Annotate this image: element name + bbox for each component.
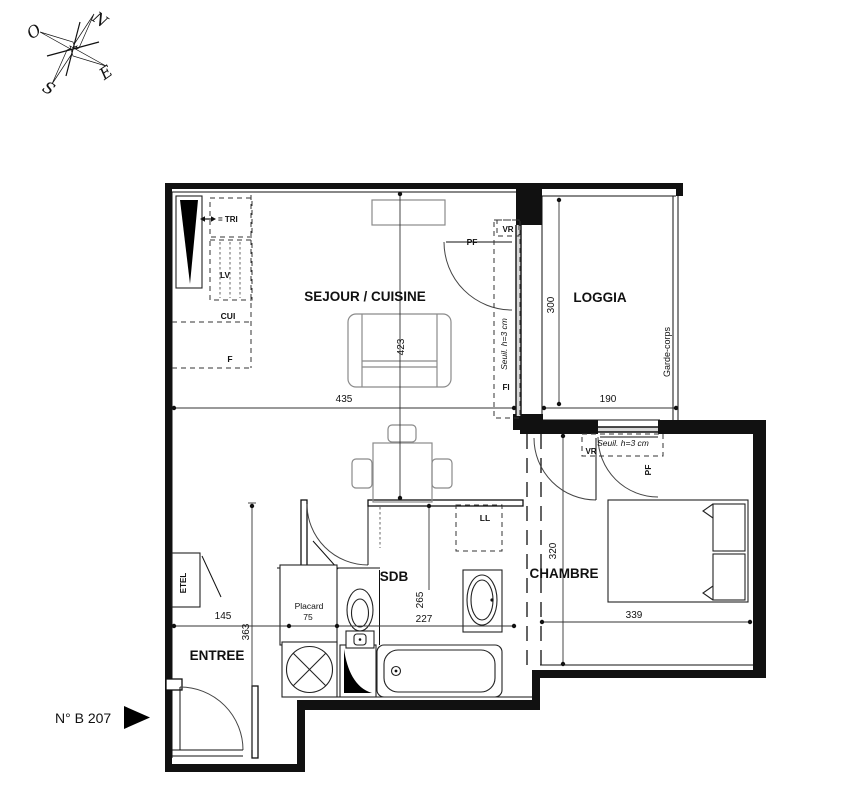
wall-entry-bottom <box>165 764 305 772</box>
wall-sdb-bottom <box>297 700 540 710</box>
dim-dot <box>398 496 402 500</box>
compass-label-west: O <box>23 20 45 43</box>
furniture <box>348 200 748 602</box>
wall-entry-alcove <box>252 686 258 758</box>
bathtub <box>377 645 502 697</box>
dim-dot <box>557 402 561 406</box>
dim-dot <box>748 620 752 624</box>
floor-plan-drawing: N O E S <box>0 0 841 800</box>
label-pf-chambre: PF <box>643 465 653 476</box>
door-arc-sejour <box>444 242 512 310</box>
dim-145: 145 <box>215 611 232 622</box>
label-fridge: F <box>227 354 232 364</box>
label-garde-corps: Garde-corps <box>662 326 672 377</box>
chair <box>352 459 372 488</box>
dining-set <box>352 425 452 502</box>
wall-loggia-pillar <box>516 183 542 225</box>
label-ll: LL <box>480 513 490 523</box>
toilet <box>346 589 374 648</box>
dishwasher-zone <box>210 240 252 300</box>
unit-number: N° B 207 <box>55 706 150 729</box>
dim-300: 300 <box>546 296 557 313</box>
dim-dot <box>540 620 544 624</box>
dim-dot <box>398 192 402 196</box>
floor-plan-page: N O E S <box>0 0 841 800</box>
dim-339: 339 <box>626 610 643 621</box>
label-lv: LV <box>220 271 230 280</box>
kitchen-zone <box>172 195 252 368</box>
dim-435: 435 <box>336 394 353 405</box>
dining-table <box>373 443 432 502</box>
label-tri: = TRI <box>218 215 238 224</box>
washbasin-counter <box>463 570 502 632</box>
pillow <box>713 554 745 600</box>
compass-needle-e2 <box>70 46 106 66</box>
dim-dot <box>674 406 678 410</box>
toilet-flush-dot <box>359 638 362 641</box>
wall-window-stub <box>513 414 543 430</box>
dim-dot <box>250 504 254 508</box>
wall-entree-sdb <box>301 500 307 570</box>
etel-door-leaf <box>202 556 221 597</box>
dim-dot <box>512 624 516 628</box>
loggia-railing <box>673 196 678 420</box>
room-label-chambre: CHAMBRE <box>530 566 599 581</box>
bathtub-drain-dot <box>395 670 398 673</box>
label-vr-sejour: VR <box>502 225 513 234</box>
wall-step <box>297 706 305 772</box>
window-chambre <box>598 427 658 432</box>
shower <box>282 642 337 697</box>
sideboard <box>372 200 445 225</box>
windows <box>516 225 658 432</box>
dim-227: 227 <box>416 614 433 625</box>
pillow <box>713 504 745 551</box>
label-placard: Placard <box>295 601 324 611</box>
chair <box>388 425 416 442</box>
washing-machine-zone <box>456 505 502 551</box>
door-arc-sdb <box>307 504 368 565</box>
bathroom-fixtures <box>172 505 502 697</box>
label-seuil-sejour: Seuil. h=3 cm <box>499 318 509 370</box>
pillow-fold <box>703 586 713 600</box>
dim-363: 363 <box>241 623 252 640</box>
dim-dot <box>561 662 565 666</box>
pillow-fold <box>703 504 713 518</box>
dim-423: 423 <box>396 338 407 355</box>
room-label-sejour: SEJOUR / CUISINE <box>304 289 426 304</box>
dim-dot <box>512 406 516 410</box>
dim-dot <box>557 198 561 202</box>
room-label-sdb: SDB <box>380 569 409 584</box>
label-vr-chambre: VR <box>585 447 596 456</box>
wall-top <box>165 183 683 189</box>
washbasin-bowl-inner <box>471 580 493 620</box>
label-fi: FI <box>502 383 509 392</box>
room-label-entree: ENTREE <box>190 648 245 663</box>
label-cui: CUI <box>221 311 236 321</box>
wall-chambre-bottom <box>532 670 766 678</box>
door-arc-entry <box>180 687 243 750</box>
washbasin-tap-dot <box>490 598 493 601</box>
washbasin <box>463 570 502 632</box>
dim-dot <box>427 504 431 508</box>
dim-190: 190 <box>600 394 617 405</box>
bed <box>608 500 748 602</box>
text-labels: SEJOUR / CUISINE LOGGIA CHAMBRE SDB ENTR… <box>179 215 672 663</box>
unit-number-label: N° B 207 <box>55 710 111 726</box>
dim-dot <box>172 406 176 410</box>
label-etel: ETEL <box>179 573 188 594</box>
wall-top-right-corner <box>676 183 683 196</box>
wall-sdb-north <box>368 500 523 506</box>
chair <box>432 459 452 488</box>
dim-dot <box>335 624 339 628</box>
label-seuil-chambre: Seuil. h=3 cm <box>597 438 649 448</box>
dim-dot <box>542 406 546 410</box>
dim-dot <box>287 624 291 628</box>
dim-265: 265 <box>415 591 426 608</box>
vanity-unit <box>340 645 376 697</box>
dim-320: 320 <box>548 542 559 559</box>
dim-dot <box>172 624 176 628</box>
compass-label-east: E <box>95 61 117 84</box>
label-placard-width: 75 <box>303 612 313 622</box>
wall-chambre-top-right <box>658 420 766 434</box>
room-label-loggia: LOGGIA <box>573 290 626 305</box>
label-pf-sejour: PF <box>467 237 478 247</box>
unit-pointer-icon <box>124 706 150 729</box>
toilet-bowl <box>347 589 373 631</box>
compass-label-north: N <box>88 7 112 32</box>
wall-right <box>753 427 766 678</box>
compass-rose: N O E S <box>23 7 116 99</box>
compass-label-south: S <box>39 77 58 99</box>
dim-dot <box>561 434 565 438</box>
